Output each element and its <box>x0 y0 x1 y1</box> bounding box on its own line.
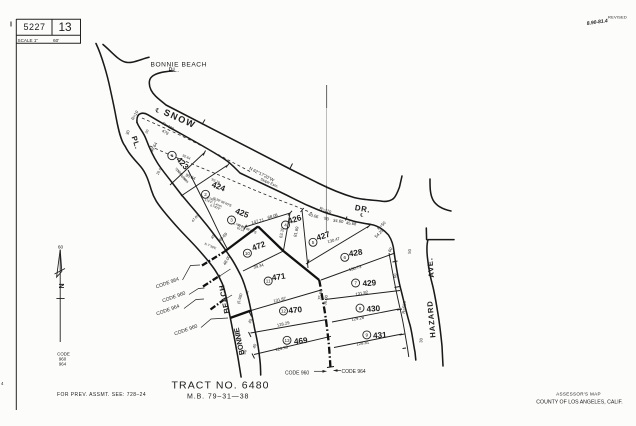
svg-text:431: 431 <box>373 330 388 340</box>
svg-text:M.B. 79–31—38: M.B. 79–31—38 <box>187 393 249 400</box>
svg-text:CODE 964: CODE 964 <box>342 369 366 375</box>
svg-text:430: 430 <box>366 304 381 314</box>
svg-text:6: 6 <box>344 255 347 260</box>
svg-text:SCALE 1": SCALE 1" <box>18 38 39 43</box>
svg-text:13: 13 <box>284 338 290 343</box>
svg-text:9: 9 <box>366 333 369 338</box>
svg-text:429: 429 <box>362 278 377 288</box>
svg-text:CODE 960: CODE 960 <box>285 370 309 376</box>
svg-text:ASSESSOR'S MAP: ASSESSOR'S MAP <box>556 391 601 396</box>
svg-text:FOR PREV. ASSMT. SEE: 728–24: FOR PREV. ASSMT. SEE: 728–24 <box>57 392 146 398</box>
svg-text:N: N <box>59 283 66 288</box>
svg-text:60: 60 <box>58 245 64 251</box>
svg-text:470: 470 <box>288 305 303 315</box>
svg-text:1: 1 <box>171 153 174 158</box>
svg-text:5227: 5227 <box>23 22 45 32</box>
svg-text:REVISED: REVISED <box>608 14 627 19</box>
svg-text:10: 10 <box>245 251 251 256</box>
svg-text:13: 13 <box>58 20 72 34</box>
svg-text:5: 5 <box>312 240 315 245</box>
svg-text:TRACT NO. 6480: TRACT NO. 6480 <box>172 380 270 392</box>
svg-text:AVE.: AVE. <box>425 257 436 278</box>
svg-text:PL.: PL. <box>169 67 180 74</box>
svg-text:COUNTY OF LOS ANGELES, CALIF.: COUNTY OF LOS ANGELES, CALIF. <box>536 400 622 406</box>
svg-text:12: 12 <box>281 309 287 314</box>
svg-text:964: 964 <box>59 362 67 367</box>
svg-text:11: 11 <box>266 279 271 284</box>
svg-text:60': 60' <box>53 38 59 44</box>
svg-text:469: 469 <box>293 336 308 346</box>
svg-text:4: 4 <box>284 223 287 228</box>
svg-text:8: 8 <box>359 306 362 311</box>
svg-text:7: 7 <box>354 281 357 286</box>
